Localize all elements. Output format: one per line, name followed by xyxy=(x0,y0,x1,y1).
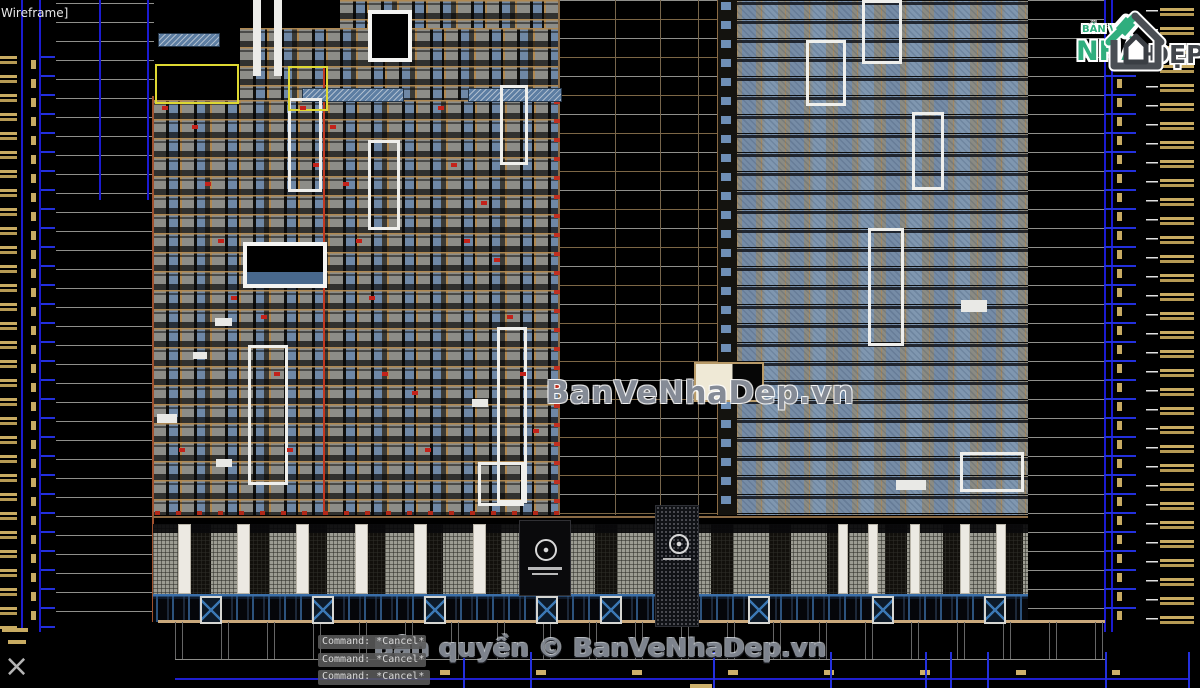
podium-pier xyxy=(473,524,486,594)
highlight-sill xyxy=(157,414,177,423)
left-dimension-arrows xyxy=(41,56,55,630)
crosshair-cursor[interactable]: × xyxy=(4,652,29,682)
highlight-sill xyxy=(193,352,207,359)
highlight-bar xyxy=(274,0,282,76)
red-accent xyxy=(494,258,500,262)
podium-pier xyxy=(960,524,970,594)
podium-slab-line xyxy=(153,516,1028,518)
podium-pier xyxy=(178,524,191,594)
red-accent xyxy=(179,448,185,452)
highlight-rect xyxy=(806,40,846,106)
highlight-rect xyxy=(862,0,902,64)
balcony-red-accents xyxy=(554,100,560,510)
podium-pier xyxy=(868,524,878,594)
red-accent xyxy=(369,296,375,300)
red-accent xyxy=(300,106,306,110)
red-accent xyxy=(313,163,319,167)
highlight-sill xyxy=(896,480,926,490)
cad-viewport[interactable]: × Wireframe] BanVeNhaDep.vn Bản quyền © … xyxy=(0,0,1200,688)
storefront-door xyxy=(536,596,558,624)
highlight-panel xyxy=(243,242,327,288)
left-bottom-label xyxy=(8,640,26,644)
highlight-sill xyxy=(215,318,232,326)
podium-pier xyxy=(355,524,368,594)
watermark-text: BanVeNhaDep.vn xyxy=(546,375,855,411)
highlight-sill xyxy=(216,459,232,467)
right-dimension-values xyxy=(1117,60,1122,620)
brand-emblem-icon xyxy=(669,534,689,554)
red-accent xyxy=(507,315,513,319)
bottom-dimension-tick xyxy=(830,652,832,688)
red-accent xyxy=(412,391,418,395)
gap-grid-line xyxy=(698,0,699,515)
highlight-rect xyxy=(868,228,904,346)
right-tower-core-windows xyxy=(721,2,731,513)
right-level-ticks xyxy=(1146,10,1158,626)
bottom-dimension-tick xyxy=(1105,652,1107,688)
ground-floor-storefronts xyxy=(153,594,1028,622)
bottom-dimension-tick xyxy=(1188,652,1190,688)
storefront-door xyxy=(200,596,222,624)
sign-text xyxy=(532,573,558,575)
highlight-rect xyxy=(960,452,1024,492)
command-input-line[interactable]: Command: *Cancel* xyxy=(318,670,430,685)
red-accent xyxy=(451,163,457,167)
red-accent xyxy=(382,372,388,376)
highlight-sill xyxy=(961,300,987,312)
gap-grid-line xyxy=(660,0,661,515)
roof-slab xyxy=(158,33,220,47)
bottom-dimension-tick xyxy=(950,652,952,688)
red-accent xyxy=(192,125,198,129)
right-level-labels xyxy=(1160,8,1194,626)
site-logo: BẢN VẼ NHÀ ĐẸP xyxy=(1076,4,1198,78)
podium-pier xyxy=(296,524,309,594)
copyright-text: Bản quyền © BanVeNhaDep.vn xyxy=(374,634,826,664)
red-accent xyxy=(520,372,526,376)
highlight-rect xyxy=(368,10,412,62)
red-accent xyxy=(438,106,444,110)
left-dimension-line xyxy=(147,0,149,200)
red-accent xyxy=(343,182,349,186)
storefront-door xyxy=(748,596,770,624)
red-accent xyxy=(425,448,431,452)
right-extension-lines xyxy=(1028,0,1104,620)
left-bottom-label xyxy=(2,628,28,632)
red-accent xyxy=(205,182,211,186)
highlight-sill xyxy=(472,399,488,407)
red-accent xyxy=(231,296,237,300)
section-marker-line xyxy=(323,68,325,515)
highlight-rect xyxy=(500,85,528,165)
storefront-door xyxy=(872,596,894,624)
podium-lattice-band xyxy=(153,524,1028,594)
yellow-highlight-rect xyxy=(288,66,328,111)
perforated-screen-tower xyxy=(655,505,699,627)
red-accent xyxy=(218,239,224,243)
red-accent xyxy=(464,239,470,243)
bottom-dimension-value xyxy=(690,684,712,688)
podium-pier xyxy=(910,524,920,594)
left-dimension-line xyxy=(21,0,23,632)
red-accent xyxy=(481,201,487,205)
highlight-rect xyxy=(248,345,288,485)
red-accent xyxy=(261,315,267,319)
sign-text xyxy=(528,567,562,570)
podium-pier xyxy=(237,524,250,594)
bottom-dimension-tick xyxy=(987,652,989,688)
yellow-highlight-rect xyxy=(155,64,239,104)
sign-text xyxy=(663,558,691,560)
parapet-red-accents xyxy=(155,511,560,515)
storefront-door xyxy=(424,596,446,624)
left-dimension-values xyxy=(31,60,36,620)
podium-pier xyxy=(996,524,1006,594)
red-accent xyxy=(330,125,336,129)
brand-emblem-icon xyxy=(535,539,557,561)
red-accent xyxy=(356,239,362,243)
red-accent xyxy=(287,448,293,452)
highlight-rect xyxy=(288,98,322,192)
highlight-rect xyxy=(368,140,400,230)
storefront-door xyxy=(984,596,1006,624)
gap-floor-lines xyxy=(553,0,737,515)
command-history-line: Command: *Cancel* xyxy=(318,635,426,649)
storefront-door xyxy=(312,596,334,624)
highlight-rect xyxy=(912,112,944,190)
podium-pier xyxy=(838,524,848,594)
left-dimension-line xyxy=(99,0,101,200)
bottom-dimension-values xyxy=(440,670,1120,675)
red-accent xyxy=(533,429,539,433)
highlight-rect xyxy=(478,462,524,506)
left-extension-lines xyxy=(56,3,154,622)
highlight-bar xyxy=(253,0,261,76)
red-accent xyxy=(162,106,168,110)
left-level-labels xyxy=(0,56,17,630)
bottom-dimension-tick xyxy=(925,652,927,688)
red-accent xyxy=(274,372,280,376)
command-history-line: Command: *Cancel* xyxy=(318,653,426,667)
viewport-style-label[interactable]: Wireframe] xyxy=(1,6,68,20)
house-icon xyxy=(1104,4,1168,74)
gap-grid-line xyxy=(615,0,616,515)
podium-pier xyxy=(414,524,427,594)
signage-panel xyxy=(519,520,571,596)
storefront-door xyxy=(600,596,622,624)
